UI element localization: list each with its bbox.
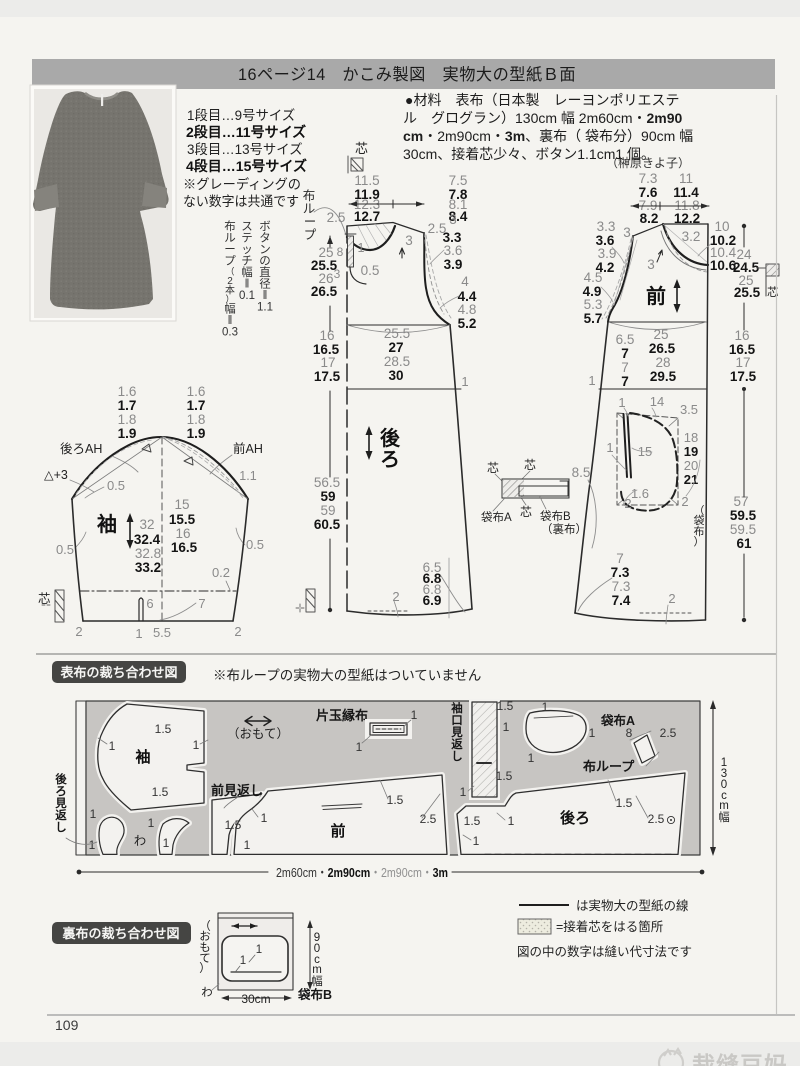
- svg-text:△+3: △+3: [44, 468, 68, 482]
- svg-text:わ: わ: [134, 834, 147, 848]
- svg-text:1: 1: [261, 811, 268, 825]
- svg-text:3.5: 3.5: [680, 402, 698, 417]
- svg-text:※布ループの実物大の型紙はついていません: ※布ループの実物大の型紙はついていません: [213, 668, 481, 683]
- svg-text:16: 16: [175, 526, 190, 541]
- svg-text:56.5: 56.5: [314, 475, 340, 490]
- svg-text:2段目…11号サイズ: 2段目…11号サイズ: [186, 124, 306, 140]
- svg-text:7.3: 7.3: [611, 565, 630, 580]
- svg-text:1.6: 1.6: [631, 486, 649, 501]
- svg-text:袖: 袖: [97, 512, 117, 536]
- svg-text:16.5: 16.5: [171, 540, 198, 555]
- svg-text:6.5: 6.5: [616, 332, 635, 347]
- svg-text:1.5: 1.5: [152, 785, 169, 799]
- svg-text:7.3: 7.3: [639, 171, 658, 186]
- svg-text:2.5: 2.5: [660, 726, 677, 740]
- svg-text:21: 21: [684, 472, 698, 487]
- svg-text:59.5: 59.5: [730, 508, 757, 523]
- svg-text:布ループ: 布ループ: [583, 759, 635, 774]
- svg-text:2.5: 2.5: [420, 812, 437, 826]
- svg-text:16: 16: [319, 328, 334, 343]
- svg-text:1: 1: [358, 241, 365, 255]
- svg-text:片玉縁布: 片玉縁布: [316, 708, 368, 723]
- svg-text:2: 2: [75, 624, 82, 639]
- svg-text:1: 1: [606, 440, 613, 455]
- svg-text:袋布B: 袋布B: [297, 987, 332, 1002]
- svg-text:8.5: 8.5: [572, 465, 591, 480]
- svg-text:芯: 芯: [487, 461, 499, 475]
- svg-text:1: 1: [460, 785, 467, 799]
- svg-text:26.5: 26.5: [311, 284, 338, 299]
- svg-text:4.5: 4.5: [584, 270, 603, 285]
- svg-text:10: 10: [714, 219, 729, 234]
- svg-text:29.5: 29.5: [650, 369, 677, 384]
- svg-text:（榊原きよ子）: （榊原きよ子）: [606, 156, 690, 170]
- svg-text:19: 19: [684, 444, 698, 459]
- svg-text:芯: 芯: [38, 592, 51, 606]
- svg-text:17: 17: [320, 355, 335, 370]
- svg-text:33.2: 33.2: [135, 560, 161, 575]
- svg-text:26.5: 26.5: [649, 341, 676, 356]
- svg-text:5.3: 5.3: [584, 297, 603, 312]
- svg-text:7.3: 7.3: [612, 579, 631, 594]
- svg-text:1: 1: [473, 834, 480, 848]
- svg-text:1: 1: [193, 738, 200, 752]
- svg-text:27: 27: [388, 340, 403, 355]
- svg-text:1: 1: [461, 374, 468, 389]
- svg-text:14: 14: [650, 394, 664, 409]
- svg-text:1: 1: [90, 807, 97, 821]
- svg-text:59: 59: [320, 503, 335, 518]
- svg-text:1.7: 1.7: [118, 398, 137, 413]
- svg-text:7: 7: [198, 596, 205, 611]
- svg-text:60.5: 60.5: [314, 517, 341, 532]
- svg-text:3.9: 3.9: [444, 257, 463, 272]
- svg-text:1: 1: [618, 395, 625, 410]
- svg-text:32.4: 32.4: [134, 532, 161, 547]
- svg-text:0.5: 0.5: [246, 537, 264, 552]
- svg-text:2: 2: [681, 494, 688, 509]
- svg-text:2: 2: [234, 624, 241, 639]
- svg-text:2: 2: [668, 591, 675, 606]
- svg-text:7: 7: [621, 346, 629, 361]
- svg-text:2.5: 2.5: [648, 812, 665, 826]
- svg-text:前AH: 前AH: [233, 441, 263, 456]
- svg-text:8.2: 8.2: [640, 211, 659, 226]
- svg-text:1: 1: [256, 944, 262, 956]
- svg-text:1.8: 1.8: [118, 412, 137, 427]
- svg-text:2: 2: [624, 496, 631, 511]
- svg-text:11.5: 11.5: [354, 173, 379, 188]
- svg-text:1.9: 1.9: [187, 426, 206, 441]
- svg-text:7: 7: [621, 374, 629, 389]
- svg-text:0.2: 0.2: [212, 565, 230, 580]
- svg-text:1: 1: [135, 626, 142, 641]
- svg-text:芯: 芯: [520, 505, 532, 519]
- svg-text:（裏布）: （裏布）: [541, 522, 587, 536]
- svg-text:3: 3: [623, 225, 631, 240]
- svg-text:17.5: 17.5: [314, 369, 341, 384]
- svg-text:61: 61: [736, 536, 752, 551]
- svg-text:は実物大の型紙の線: は実物大の型紙の線: [576, 898, 689, 913]
- svg-text:3段目…13号サイズ: 3段目…13号サイズ: [187, 142, 303, 157]
- svg-text:ステッチ幅‖0.1: ステッチ幅‖0.1: [239, 221, 255, 302]
- svg-text:17.5: 17.5: [730, 369, 757, 384]
- svg-text:（おもて）: （おもて）: [227, 727, 289, 741]
- svg-text:7: 7: [616, 551, 624, 566]
- svg-text:図の中の数字は縫い代寸法です: 図の中の数字は縫い代寸法です: [517, 944, 692, 959]
- svg-text:8: 8: [626, 726, 633, 740]
- svg-text:1.5: 1.5: [464, 814, 481, 828]
- svg-text:59.5: 59.5: [730, 522, 756, 537]
- svg-text:0.5: 0.5: [107, 478, 125, 493]
- svg-text:（おもて）: （おもて）: [199, 920, 211, 975]
- svg-text:後ろ: 後ろ: [559, 809, 590, 827]
- svg-text:0.5: 0.5: [56, 542, 74, 557]
- svg-text:3.3: 3.3: [597, 219, 616, 234]
- svg-text:1.5: 1.5: [616, 796, 633, 810]
- svg-text:1.6: 1.6: [118, 384, 137, 399]
- svg-text:cm・2m90cm・3m、裏布（ 袋布分）90cm 幅: cm・2m90cm・3m、裏布（ 袋布分）90cm 幅: [403, 128, 693, 144]
- svg-text:ない数字は共通です: ない数字は共通です: [183, 194, 299, 209]
- svg-text:1段目…9号サイズ: 1段目…9号サイズ: [187, 108, 295, 123]
- svg-text:57: 57: [733, 494, 748, 509]
- svg-text:●材料 表布（日本製 レーヨンポリエステ: ●材料 表布（日本製 レーヨンポリエステ: [405, 92, 679, 108]
- svg-text:11: 11: [679, 171, 693, 186]
- svg-text:芯: 芯: [355, 141, 368, 156]
- svg-text:32.8: 32.8: [135, 546, 161, 561]
- svg-text:（袋布）: （袋布）: [694, 504, 705, 548]
- svg-text:59: 59: [320, 489, 335, 504]
- svg-text:16: 16: [734, 328, 749, 343]
- svg-text:1: 1: [589, 726, 596, 740]
- svg-text:1.9: 1.9: [118, 426, 137, 441]
- svg-text:後ろ見返し: 後ろ見返し: [54, 772, 67, 834]
- svg-text:0.5: 0.5: [361, 263, 380, 278]
- svg-text:1: 1: [356, 740, 363, 754]
- svg-text:布ループ: 布ループ: [303, 189, 317, 242]
- svg-text:7.5: 7.5: [449, 173, 468, 188]
- svg-text:32: 32: [139, 517, 154, 532]
- svg-text:1: 1: [240, 955, 246, 967]
- svg-text:袖口見返し: 袖口見返し: [450, 701, 463, 763]
- svg-text:8: 8: [337, 245, 344, 259]
- svg-text:1.5: 1.5: [497, 699, 514, 713]
- svg-text:1: 1: [588, 373, 595, 388]
- svg-text:わ: わ: [201, 986, 213, 999]
- svg-text:裏布の裁ち合わせ図: 裏布の裁ち合わせ図: [61, 926, 179, 941]
- svg-text:4段目…15号サイズ: 4段目…15号サイズ: [186, 158, 307, 174]
- svg-text:3: 3: [449, 212, 457, 227]
- svg-text:1: 1: [508, 814, 515, 828]
- svg-text:7: 7: [621, 360, 629, 375]
- svg-text:6.9: 6.9: [423, 593, 442, 608]
- svg-text:18: 18: [684, 430, 698, 445]
- svg-text:1.5: 1.5: [496, 769, 513, 783]
- svg-text:5.7: 5.7: [584, 311, 603, 326]
- svg-text:1: 1: [89, 838, 96, 852]
- svg-text:28.5: 28.5: [384, 354, 410, 369]
- svg-text:袋布A: 袋布A: [481, 510, 512, 524]
- svg-text:15: 15: [174, 497, 189, 512]
- svg-text:裁缝豆妈: 裁缝豆妈: [692, 1052, 788, 1066]
- svg-text:1.7: 1.7: [187, 398, 206, 413]
- svg-text:袖: 袖: [135, 748, 150, 766]
- svg-text:12.7: 12.7: [354, 209, 380, 224]
- svg-text:1: 1: [528, 751, 535, 765]
- svg-text:3.6: 3.6: [444, 243, 463, 258]
- svg-text:後ろAH: 後ろAH: [60, 442, 102, 456]
- svg-text:28: 28: [655, 355, 670, 370]
- svg-text:16ページ14 かこみ製図 実物大の型紙Ｂ面: 16ページ14 かこみ製図 実物大の型紙Ｂ面: [238, 66, 576, 84]
- svg-text:表布の裁ち合わせ図: 表布の裁ち合わせ図: [59, 665, 177, 680]
- svg-text:1.5: 1.5: [387, 793, 404, 807]
- svg-text:1.8: 1.8: [187, 412, 206, 427]
- svg-text:ル グログラン）130cm 幅 2m60cm・2m90: ル グログラン）130cm 幅 2m60cm・2m90: [403, 110, 683, 126]
- svg-text:1: 1: [148, 816, 155, 830]
- svg-text:7.4: 7.4: [612, 593, 631, 608]
- svg-text:1.5: 1.5: [155, 722, 172, 736]
- svg-text:25.5: 25.5: [734, 285, 761, 300]
- svg-text:3: 3: [405, 233, 413, 248]
- svg-text:30cm: 30cm: [241, 992, 270, 1006]
- svg-text:30: 30: [388, 368, 403, 383]
- svg-text:2.5: 2.5: [327, 210, 346, 225]
- svg-text:1: 1: [542, 700, 549, 714]
- svg-text:前: 前: [330, 822, 345, 840]
- svg-text:5.2: 5.2: [458, 316, 477, 331]
- svg-text:1.6: 1.6: [187, 384, 206, 399]
- svg-text:=接着芯をはる箇所: =接着芯をはる箇所: [556, 919, 663, 934]
- svg-text:1: 1: [503, 720, 510, 734]
- svg-text:前: 前: [646, 284, 666, 308]
- svg-text:5.5: 5.5: [153, 625, 171, 640]
- svg-text:※グレーディングの: ※グレーディングの: [183, 176, 301, 192]
- svg-text:4.8: 4.8: [458, 302, 477, 317]
- svg-text:後ろ: 後ろ: [380, 426, 401, 471]
- svg-text:1: 1: [163, 836, 170, 850]
- svg-text:前見返し: 前見返し: [211, 783, 263, 798]
- svg-text:1.5: 1.5: [225, 818, 242, 832]
- svg-text:3: 3: [647, 257, 655, 272]
- svg-text:芯: 芯: [524, 458, 536, 472]
- svg-text:25.5: 25.5: [384, 326, 410, 341]
- svg-text:6: 6: [146, 596, 153, 611]
- svg-text:4: 4: [461, 274, 469, 289]
- svg-text:1: 1: [244, 838, 251, 852]
- svg-text:袋布B: 袋布B: [540, 509, 571, 523]
- svg-text:25: 25: [653, 327, 668, 342]
- svg-text:2m60cm・2m90cm・2m90cm・3m: 2m60cm・2m90cm・2m90cm・3m: [276, 865, 448, 880]
- svg-text:17: 17: [735, 355, 750, 370]
- svg-text:1: 1: [411, 708, 418, 722]
- svg-text:1.1: 1.1: [239, 469, 256, 483]
- svg-text:3.2: 3.2: [682, 229, 701, 244]
- svg-text:109: 109: [55, 1017, 79, 1033]
- svg-text:2: 2: [392, 589, 399, 604]
- svg-text:20: 20: [684, 458, 698, 473]
- svg-text:15.5: 15.5: [169, 512, 196, 527]
- svg-text:1: 1: [109, 739, 116, 753]
